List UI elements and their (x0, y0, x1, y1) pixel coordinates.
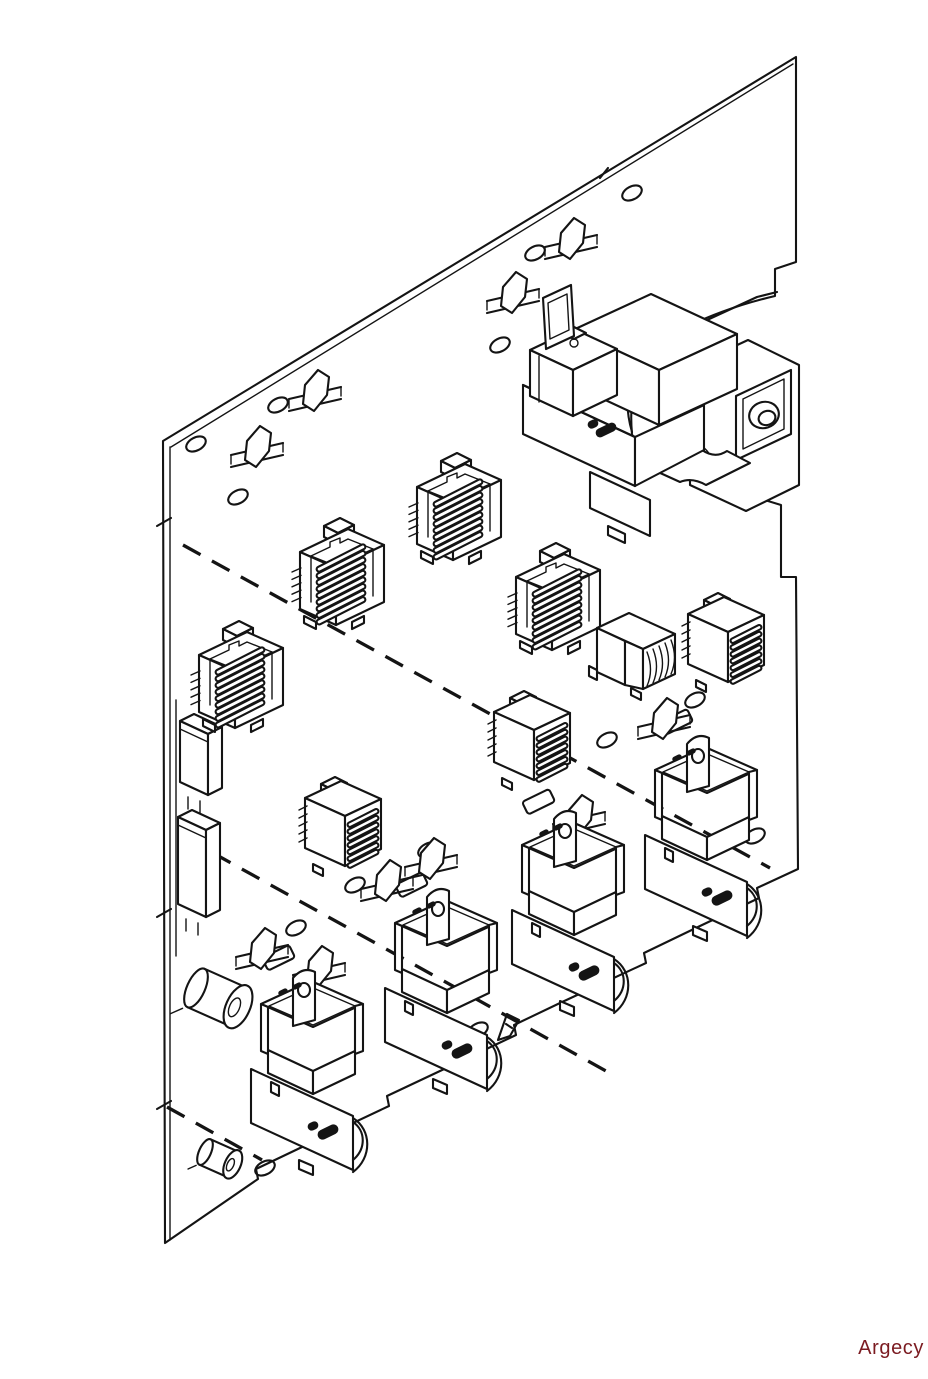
board-diagram (0, 0, 928, 1379)
isometric-board-svg (0, 0, 928, 1379)
watermark-argecy: Argecy (858, 1337, 924, 1360)
